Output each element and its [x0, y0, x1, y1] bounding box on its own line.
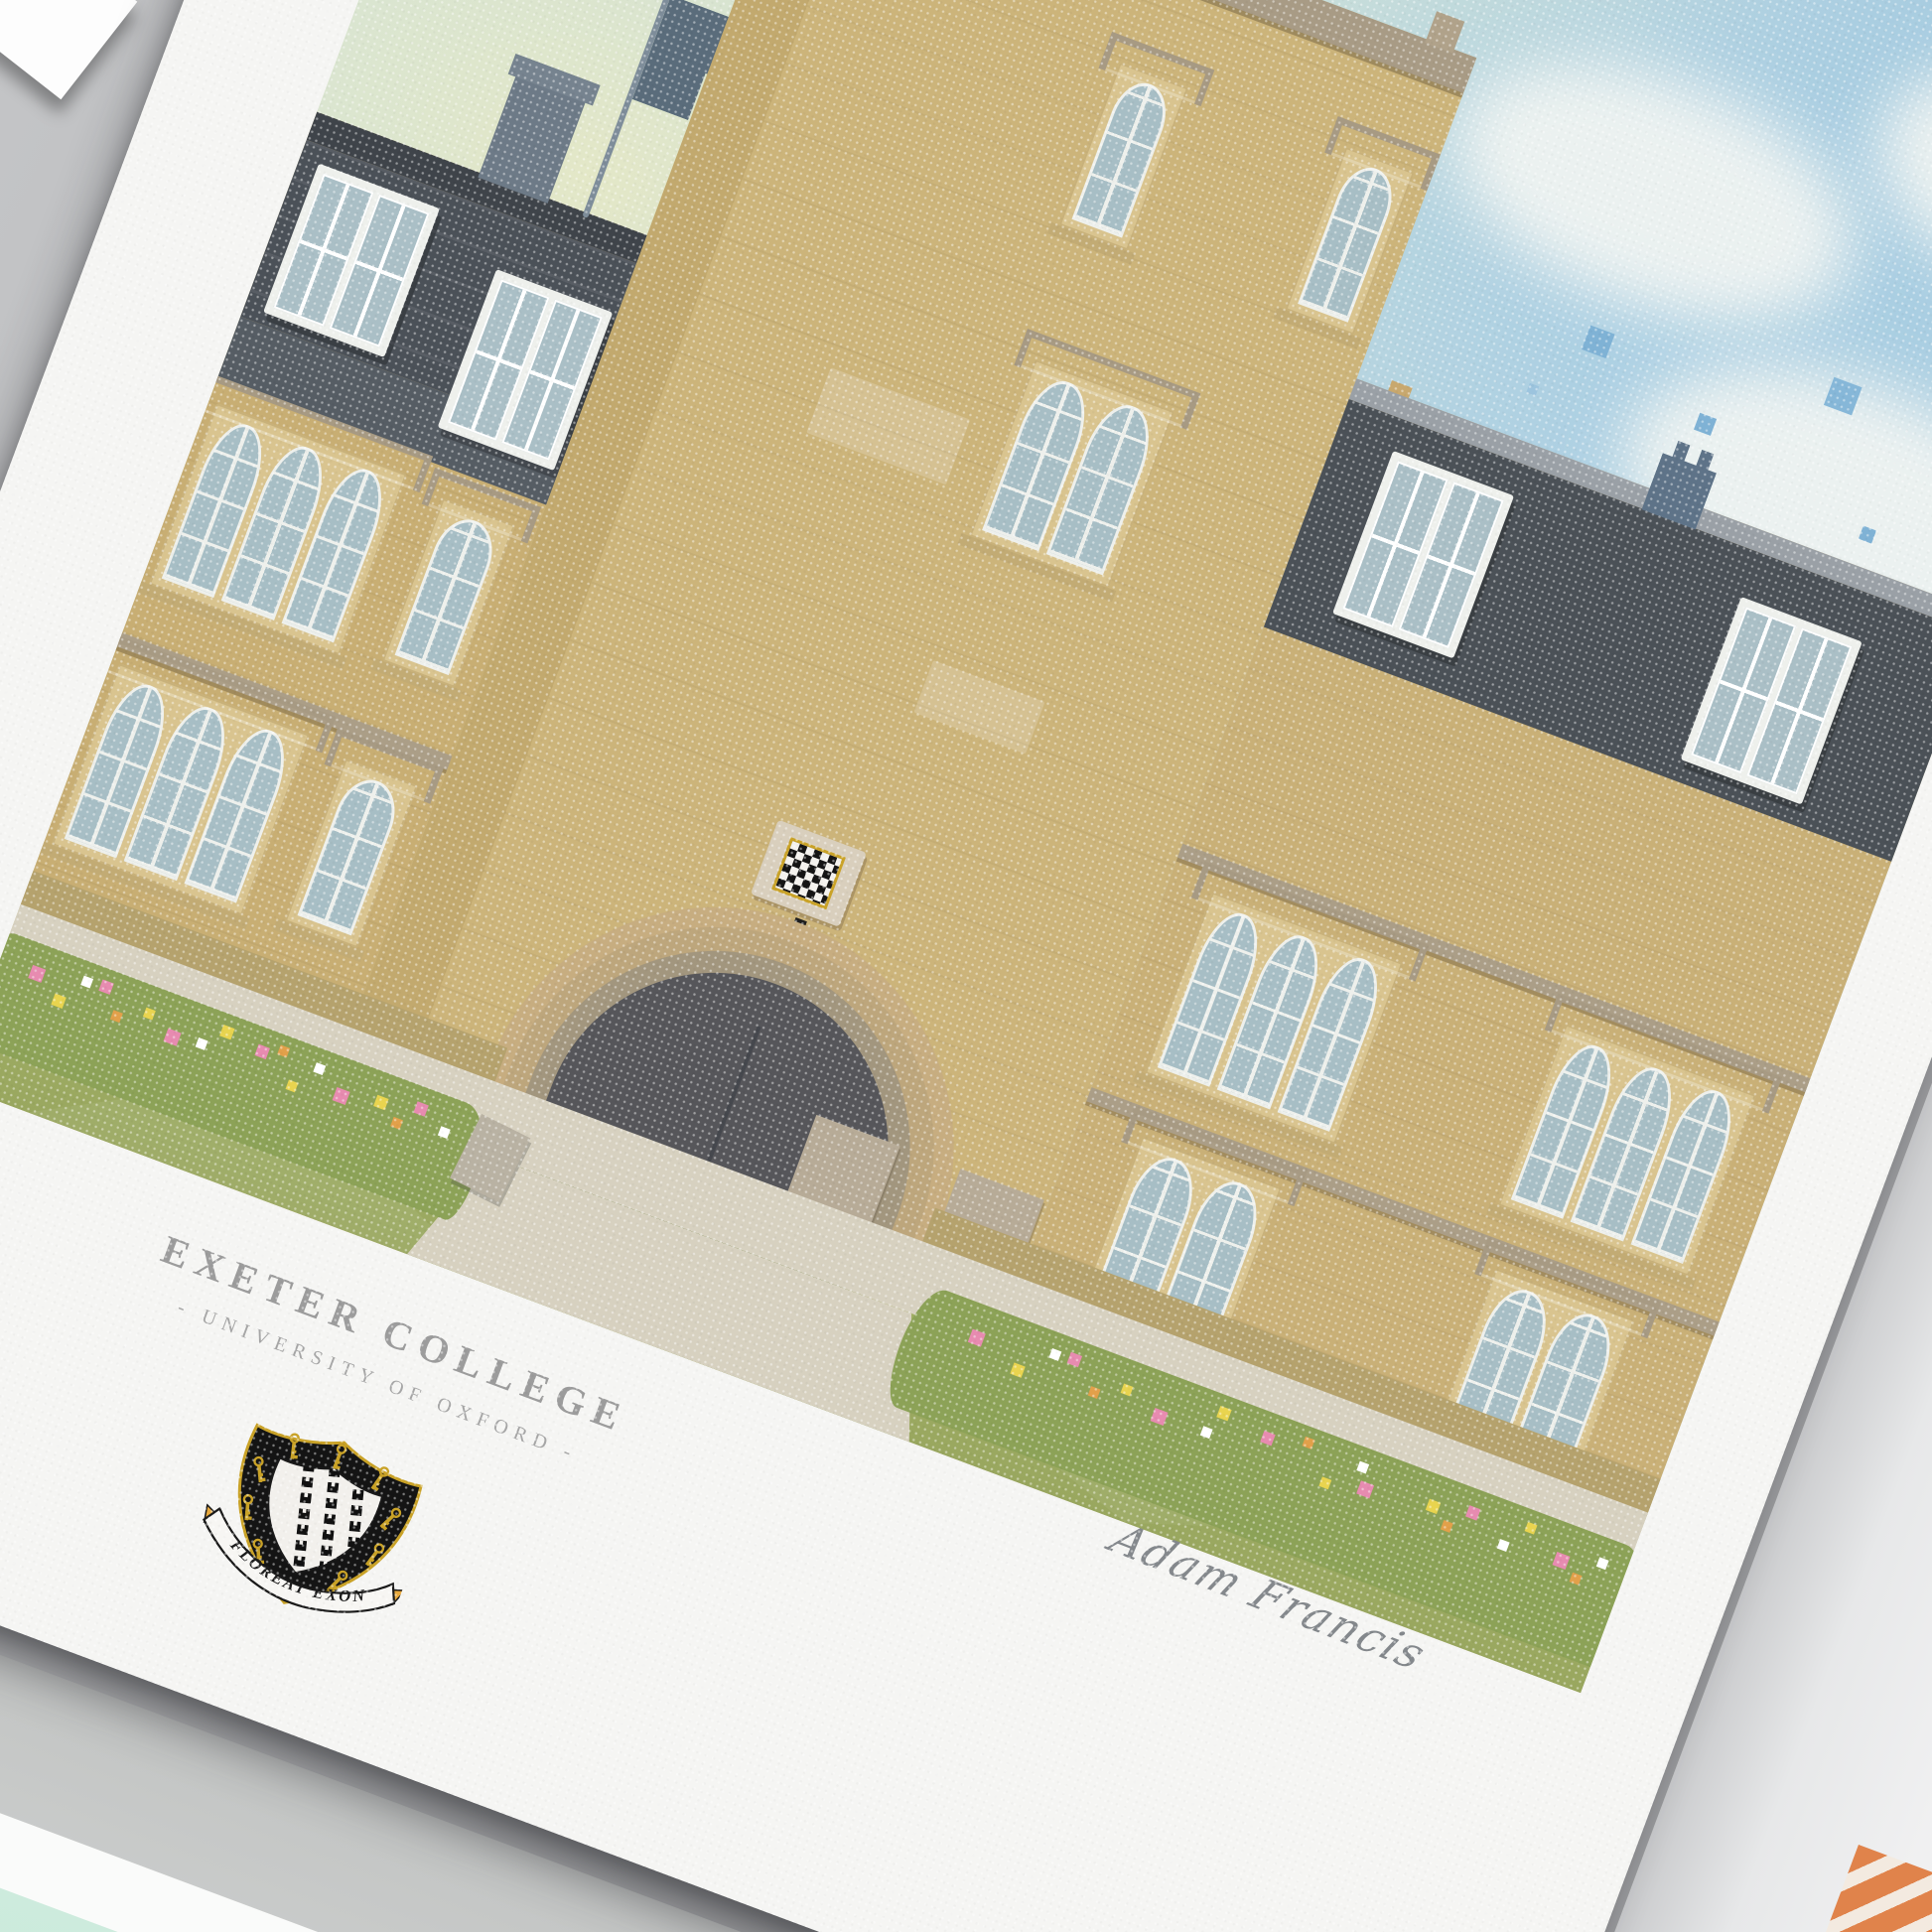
- stone-patch: [913, 660, 1044, 754]
- window-three-light: [1145, 892, 1403, 1144]
- window-three-light: [1498, 1024, 1756, 1276]
- crest-shield-icon: FLOREAT EXON: [180, 1400, 446, 1651]
- tower-two-light-window: [969, 359, 1174, 588]
- stone-patch: [806, 367, 970, 484]
- product-photo-scene: EXETER COLLEGE - UNIVERSITY OF OXFORD -: [0, 0, 1932, 1932]
- print-paper: EXETER COLLEGE - UNIVERSITY OF OXFORD -: [0, 0, 1932, 1932]
- cloud: [1419, 13, 1889, 373]
- cloud: [1843, 22, 1932, 358]
- tower-lancet-window: [1059, 63, 1189, 251]
- college-crest: FLOREAT EXON: [178, 1400, 446, 1656]
- window-three-light: [52, 663, 310, 915]
- art-print: EXETER COLLEGE - UNIVERSITY OF OXFORD -: [0, 0, 1932, 1932]
- window-three-light: [149, 403, 407, 655]
- crest-plaque: [751, 820, 867, 927]
